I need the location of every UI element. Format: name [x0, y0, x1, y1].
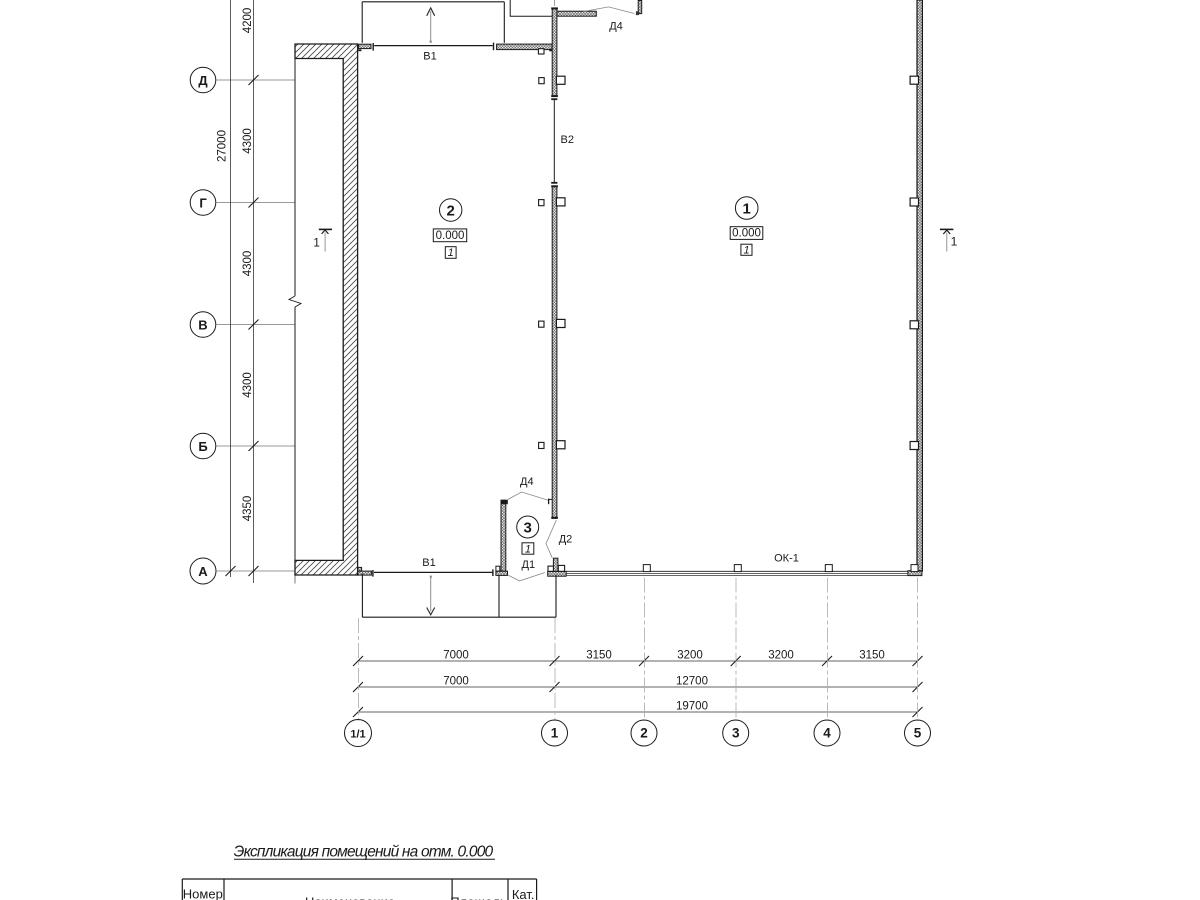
svg-text:2: 2: [447, 202, 455, 219]
svg-text:19700: 19700: [676, 700, 708, 712]
svg-text:7000: 7000: [443, 650, 469, 662]
svg-text:4: 4: [823, 726, 831, 741]
svg-text:12700: 12700: [676, 675, 708, 687]
svg-text:Площадь: Площадь: [450, 895, 507, 900]
svg-text:2: 2: [640, 726, 648, 741]
svg-text:Д: Д: [198, 73, 208, 88]
svg-text:3200: 3200: [768, 650, 794, 662]
svg-text:4200: 4200: [242, 8, 254, 34]
svg-text:7000: 7000: [443, 675, 469, 687]
svg-text:В1: В1: [423, 51, 436, 63]
svg-text:Д2: Д2: [559, 534, 573, 546]
svg-text:Наименование: Наименование: [305, 895, 395, 900]
svg-text:Экспликация помещений на отм.: Экспликация помещений на отм. 0.000: [234, 843, 494, 860]
svg-text:В: В: [198, 318, 207, 333]
svg-text:4300: 4300: [242, 128, 254, 154]
svg-text:1: 1: [743, 200, 751, 217]
svg-text:Д4: Д4: [609, 21, 623, 33]
svg-text:Кат.: Кат.: [512, 887, 535, 900]
svg-text:1: 1: [313, 235, 320, 249]
svg-text:3: 3: [524, 519, 532, 536]
svg-text:Д4: Д4: [520, 476, 534, 488]
svg-text:0.000: 0.000: [436, 230, 465, 242]
svg-text:А: А: [198, 564, 208, 579]
svg-text:1: 1: [448, 247, 454, 259]
svg-text:В2: В2: [561, 134, 574, 146]
svg-text:В1: В1: [422, 557, 435, 569]
svg-text:Б: Б: [198, 439, 207, 454]
svg-text:3150: 3150: [586, 650, 612, 662]
svg-text:3200: 3200: [677, 650, 703, 662]
svg-text:0.000: 0.000: [732, 228, 761, 240]
svg-text:4300: 4300: [242, 251, 254, 277]
svg-text:5: 5: [914, 726, 922, 741]
svg-text:27000: 27000: [217, 130, 229, 162]
svg-text:Номер: Номер: [183, 886, 223, 900]
svg-text:3: 3: [732, 726, 740, 741]
svg-text:1: 1: [525, 543, 531, 555]
svg-text:Д1: Д1: [522, 559, 536, 571]
svg-text:1: 1: [551, 726, 559, 741]
svg-text:4300: 4300: [242, 372, 254, 398]
svg-text:1: 1: [951, 235, 958, 249]
svg-text:1/1: 1/1: [350, 729, 365, 741]
svg-text:Г: Г: [199, 196, 207, 211]
svg-text:4350: 4350: [242, 496, 254, 522]
svg-text:1: 1: [743, 244, 749, 256]
svg-text:ОК-1: ОК-1: [774, 553, 799, 565]
svg-text:3150: 3150: [859, 650, 885, 662]
